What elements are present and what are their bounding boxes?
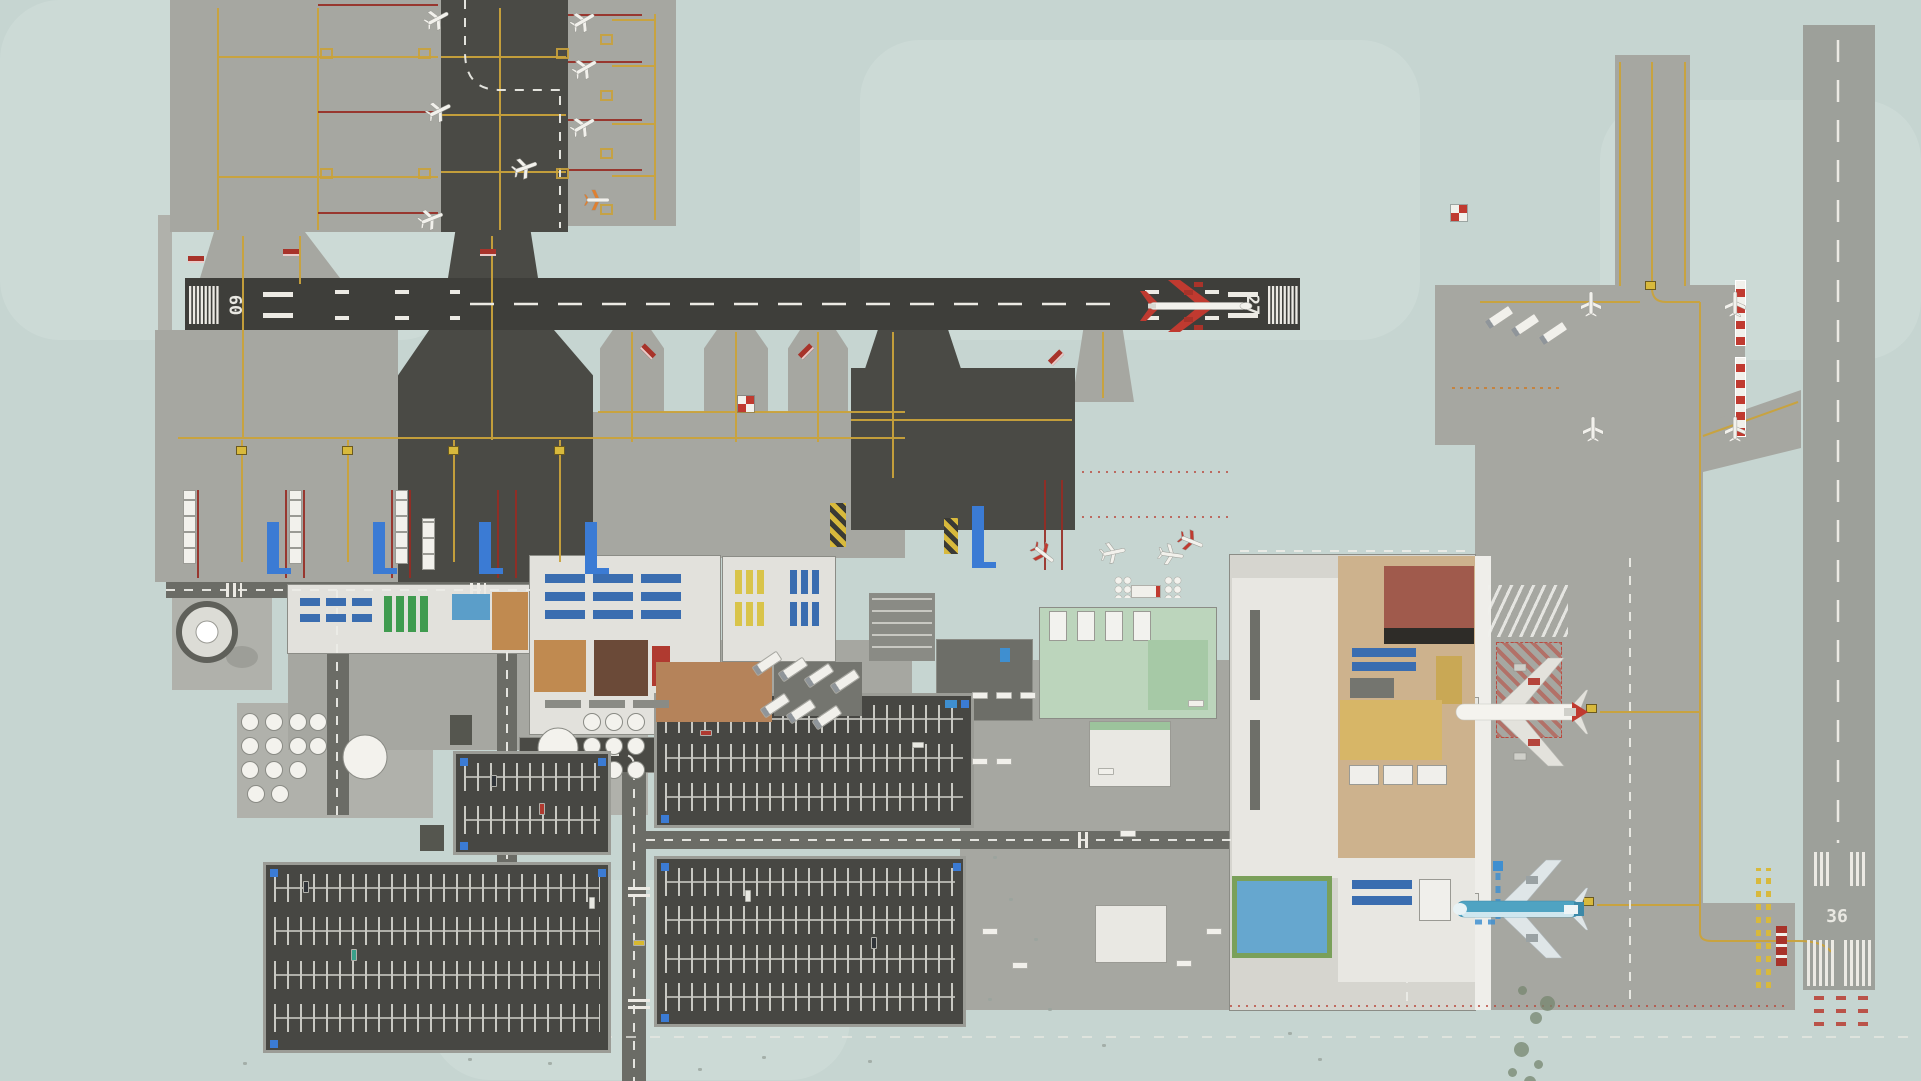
tree: [1524, 1076, 1536, 1081]
equipment-pad: [418, 48, 431, 59]
deicing-rig[interactable]: [373, 522, 385, 572]
seating-bench: [746, 570, 753, 594]
check-in-desk[interactable]: [593, 574, 633, 583]
car[interactable]: [539, 803, 545, 815]
fuel-tank[interactable]: [628, 738, 645, 755]
service-truck[interactable]: [1120, 830, 1136, 837]
parking-stall-row: [665, 744, 963, 772]
airplane-at-gate[interactable]: [1438, 652, 1588, 772]
office-desk-row: [352, 598, 372, 606]
baggage-belt: [420, 596, 428, 632]
runway-marking: [1850, 940, 1853, 986]
runway-marking: [1856, 852, 1859, 886]
equipment-pad: [320, 168, 333, 179]
fuel-tank[interactable]: [290, 738, 307, 755]
runway-marking: [1814, 852, 1817, 886]
runway-marking: [197, 286, 199, 324]
parking-lot[interactable]: [654, 856, 966, 1027]
debris: [1009, 898, 1013, 901]
kiosk[interactable]: [1384, 766, 1412, 784]
fuel-tank[interactable]: [248, 786, 265, 803]
check-in-desk[interactable]: [641, 574, 681, 583]
debris: [1102, 1044, 1106, 1047]
debris: [243, 1062, 247, 1065]
equipment-staging-pad: [830, 503, 846, 547]
runway-marking: [1288, 286, 1290, 324]
seating-bench: [801, 570, 808, 594]
runway-marking: [1862, 852, 1865, 886]
runway-marking: [1814, 1022, 1824, 1026]
stand-guidance-board: [183, 490, 196, 564]
fuel-tank[interactable]: [606, 714, 623, 731]
small-plane-icon[interactable]: [1723, 412, 1747, 442]
fuel-tank[interactable]: [310, 714, 327, 731]
handicap-spot-marker: [661, 1014, 669, 1022]
restaurant[interactable]: [594, 640, 648, 696]
service-truck[interactable]: [1176, 960, 1192, 967]
runway-marking: [450, 316, 460, 320]
runway-hold-sign: [283, 249, 299, 256]
handicap-spot-marker: [961, 700, 969, 708]
runway-marking: [1295, 286, 1297, 324]
fuel-tank[interactable]: [242, 714, 259, 731]
tree: [1534, 1060, 1543, 1069]
runway-marking: [395, 290, 409, 294]
seating-bench: [735, 602, 742, 626]
check-in-desk[interactable]: [545, 592, 585, 601]
segmented-circle-marker: [1451, 205, 1467, 221]
security-wing: [1232, 578, 1338, 878]
runway-marking: [1862, 940, 1865, 986]
runway-marking: [1836, 996, 1846, 1000]
runway-marking: [1268, 286, 1270, 324]
service-truck[interactable]: [972, 758, 988, 765]
runway-marking: [201, 286, 203, 324]
car[interactable]: [491, 775, 497, 787]
service-building-roof: [1090, 722, 1170, 730]
debris: [993, 856, 997, 859]
car[interactable]: [912, 742, 924, 748]
gate-roof: [872, 596, 932, 658]
service-truck[interactable]: [1188, 700, 1204, 707]
runway-marking: [1813, 940, 1816, 986]
deicing-rig-arm: [267, 568, 291, 574]
crosswalk: [628, 996, 650, 1009]
fuel-tank[interactable]: [290, 714, 307, 731]
parking-stall-row: [665, 983, 955, 1011]
runway-marking: [1820, 852, 1823, 886]
runway-marking: [1850, 852, 1853, 886]
cargo-door: [1000, 648, 1010, 662]
parking-stall-row: [464, 806, 600, 834]
debris: [988, 998, 992, 1001]
runway-marking: [193, 286, 195, 324]
deicing-rig-arm: [972, 562, 996, 568]
handicap-spot-marker: [460, 842, 468, 850]
stand-number-sign: [448, 446, 459, 455]
runway-marking: [1276, 286, 1278, 324]
deicing-rig[interactable]: [267, 522, 279, 572]
shop[interactable]: [492, 592, 528, 650]
fuel-tank[interactable]: [290, 762, 307, 779]
small-plane-icon[interactable]: [1579, 287, 1603, 317]
runway-marking: [1844, 940, 1847, 986]
runway-marking: [1836, 1022, 1846, 1026]
handicap-spot-marker: [661, 815, 669, 823]
equipment-pad: [600, 148, 613, 159]
seating-bench: [757, 602, 764, 626]
service-truck[interactable]: [996, 692, 1012, 699]
parking-stall-row: [665, 868, 955, 896]
office-desk-row: [326, 614, 346, 622]
runway-marking: [1858, 996, 1868, 1000]
car[interactable]: [871, 937, 877, 949]
parking-stall-row: [274, 1004, 600, 1032]
runway-marking: [1836, 1009, 1846, 1013]
deicing-rig-arm: [373, 568, 397, 574]
runway-marking: [335, 316, 349, 320]
car[interactable]: [303, 881, 309, 893]
seating-bench: [1352, 896, 1412, 905]
runway-09-number: 09: [227, 295, 247, 315]
runway-marking: [450, 290, 460, 294]
handicap-spot-marker: [953, 863, 961, 871]
car[interactable]: [351, 949, 357, 961]
passenger-walkway: [1488, 585, 1568, 637]
office-desk-row: [300, 614, 320, 622]
runway-hold-sign: [480, 249, 496, 256]
check-in-desk[interactable]: [593, 610, 633, 619]
seating-bench: [812, 602, 819, 626]
runway-marking: [1856, 940, 1859, 986]
seating-bench: [1352, 880, 1412, 889]
runway-marking: [1826, 852, 1829, 886]
deicing-rig[interactable]: [479, 522, 491, 572]
parking-stall-row: [274, 874, 600, 902]
check-in-desk[interactable]: [545, 574, 585, 583]
corridor: [1250, 610, 1260, 700]
debris: [868, 1060, 872, 1063]
service-building[interactable]: [1090, 722, 1170, 786]
runway-marking: [1825, 940, 1828, 986]
runway-marking: [1280, 286, 1282, 324]
runway-marking: [395, 316, 409, 320]
fuel-tank[interactable]: [242, 738, 259, 755]
corridor: [1250, 720, 1260, 810]
seating-bench: [1352, 662, 1416, 671]
handicap-spot-marker: [270, 1040, 278, 1048]
runway-marking: [1858, 1022, 1868, 1026]
shop[interactable]: [534, 640, 586, 692]
runway-marking: [1814, 996, 1824, 1000]
parking-lot[interactable]: [263, 862, 611, 1053]
equipment-pad: [556, 168, 569, 179]
runway-marking: [216, 286, 218, 324]
service-building[interactable]: [1096, 906, 1166, 962]
fuel-cart[interactable]: [1132, 586, 1160, 597]
service-truck[interactable]: [1206, 928, 1222, 935]
taxi-lines: [178, 8, 1831, 952]
seating-bench: [801, 602, 808, 626]
office-desk-row: [352, 614, 372, 622]
service-truck[interactable]: [972, 692, 988, 699]
bench-row: [545, 700, 581, 708]
staff-room: [452, 594, 490, 620]
debris: [762, 1056, 766, 1059]
fuel-pump-island[interactable]: [1078, 612, 1094, 640]
debris: [1034, 938, 1038, 941]
seating-bench: [812, 570, 819, 594]
fuel-tank[interactable]: [266, 762, 283, 779]
seating-bench: [790, 570, 797, 594]
cargo-door: [945, 700, 957, 708]
equipment-staging-pad: [944, 518, 958, 554]
debris: [548, 1062, 552, 1065]
equipment-pad: [418, 168, 431, 179]
seating-bench: [735, 570, 742, 594]
seating-bench: [746, 602, 753, 626]
kiosk[interactable]: [1350, 766, 1378, 784]
runway-marking: [335, 290, 349, 294]
parking-stall-row: [464, 763, 600, 791]
runway-marking: [1291, 286, 1293, 324]
car[interactable]: [633, 940, 645, 946]
service-truck[interactable]: [1012, 962, 1028, 969]
water-feature: [1232, 876, 1332, 958]
fuel-pump-island[interactable]: [1106, 612, 1122, 640]
runway-marking: [1807, 940, 1810, 986]
seating-bench: [757, 570, 764, 594]
check-in-desk[interactable]: [641, 610, 681, 619]
small-plane-icon[interactable]: [584, 188, 614, 212]
runway-marking: [212, 286, 214, 324]
fuel-drums[interactable]: [1164, 576, 1182, 598]
fuel-tank[interactable]: [628, 762, 645, 779]
stand-number-sign: [236, 446, 247, 455]
parking-stall-row: [274, 917, 600, 945]
radar-dish-center: [196, 621, 218, 643]
tree: [1514, 1042, 1529, 1057]
runway-hold-sign: [188, 256, 204, 263]
fuel-tank[interactable]: [310, 738, 327, 755]
runway-marking: [1284, 286, 1286, 324]
crosswalk: [1078, 832, 1092, 848]
tree: [1530, 1012, 1542, 1024]
stage-block: [1350, 678, 1394, 698]
deicing-rig-arm: [479, 568, 503, 574]
airport-map[interactable]: 09 27 36: [0, 0, 1921, 1081]
ils-hold-marking: [1756, 868, 1761, 988]
check-in-desk[interactable]: [641, 592, 681, 601]
fuel-pump-island[interactable]: [1050, 612, 1066, 640]
equipment-pad: [600, 34, 613, 45]
handicap-spot-marker: [460, 758, 468, 766]
handicap-spot-marker: [661, 863, 669, 871]
airplane-at-gate[interactable]: [1438, 852, 1588, 962]
handicap-spot-marker: [598, 758, 606, 766]
parking-stall-row: [665, 906, 955, 934]
small-plane-icon[interactable]: [1581, 412, 1605, 442]
runway-distance-board: [1776, 926, 1787, 966]
bar-counter: [1384, 628, 1474, 644]
baggage-belt: [384, 596, 392, 632]
seating-bench: [1352, 648, 1416, 657]
runway-marking: [263, 313, 293, 318]
small-plane-icon[interactable]: [1723, 287, 1747, 317]
stand-guidance-board: [289, 490, 302, 564]
service-truck[interactable]: [1098, 768, 1114, 775]
tree: [1508, 1068, 1517, 1077]
runway-marking: [209, 286, 211, 324]
handicap-spot-marker: [598, 869, 606, 877]
debris: [468, 1058, 472, 1061]
parking-lot[interactable]: [453, 751, 611, 855]
fuel-tank[interactable]: [266, 714, 283, 731]
office-desk-row: [300, 598, 320, 606]
runway-marking: [1819, 940, 1822, 986]
check-in-desk[interactable]: [545, 610, 585, 619]
stand-lines: [198, 5, 1062, 578]
car[interactable]: [745, 890, 751, 902]
stand-guidance-board: [395, 490, 408, 564]
equipment-pad: [600, 90, 613, 101]
parking-stall-row: [665, 783, 963, 811]
office-desk-row: [326, 598, 346, 606]
equipment-pad: [320, 48, 333, 59]
fuel-tank[interactable]: [242, 762, 259, 779]
runway-marking: [1868, 940, 1871, 986]
generator-shed[interactable]: [420, 825, 444, 851]
seating-bench: [790, 602, 797, 626]
runway-marking: [1858, 1009, 1868, 1013]
car[interactable]: [589, 897, 595, 909]
runway-marking: [263, 292, 293, 297]
fuel-tank[interactable]: [628, 714, 645, 731]
fuel-tank[interactable]: [343, 735, 387, 779]
debris: [1048, 1008, 1052, 1011]
debris: [1318, 1058, 1322, 1061]
segmented-circle-marker: [738, 396, 754, 412]
queue-area: [1340, 700, 1442, 760]
stand-number-sign: [1645, 281, 1656, 290]
runway-36-number: 36: [1826, 906, 1848, 927]
runway-marking: [205, 286, 207, 324]
service-truck[interactable]: [1020, 692, 1036, 699]
handicap-spot-marker: [270, 869, 278, 877]
debris: [1288, 1032, 1292, 1035]
equipment-pad: [556, 48, 569, 59]
check-in-desk[interactable]: [593, 592, 633, 601]
runway-marking: [189, 286, 191, 324]
ils-hold-marking: [1766, 868, 1771, 988]
baggage-belt: [408, 596, 416, 632]
deicing-rig[interactable]: [972, 506, 984, 568]
stand-number-sign: [554, 446, 565, 455]
generator-shed[interactable]: [450, 715, 472, 745]
fuel-pump-island[interactable]: [1134, 612, 1150, 640]
runway-marking: [1272, 286, 1274, 324]
parking-stall-row: [665, 945, 955, 973]
fuel-tank[interactable]: [266, 738, 283, 755]
bench-row: [589, 700, 625, 708]
fuel-tank[interactable]: [272, 786, 289, 803]
bench-row: [633, 700, 669, 708]
baggage-belt: [396, 596, 404, 632]
tree: [1518, 986, 1527, 995]
debris: [698, 1068, 702, 1071]
car[interactable]: [700, 730, 712, 736]
restaurant[interactable]: [1384, 566, 1474, 628]
deicing-rig[interactable]: [585, 522, 597, 572]
crosswalk: [226, 583, 242, 597]
stand-number-sign: [342, 446, 353, 455]
stand-guidance-board: [422, 518, 435, 570]
runway-marking: [1831, 940, 1834, 986]
tree: [1540, 996, 1555, 1011]
airplane-on-runway[interactable]: [1140, 276, 1260, 336]
runway-marking: [1814, 1009, 1824, 1013]
fuel-tank[interactable]: [584, 714, 601, 731]
service-truck[interactable]: [996, 758, 1012, 765]
parking-stall-row: [274, 961, 600, 989]
fuel-drums[interactable]: [1114, 576, 1132, 598]
crosswalk: [628, 884, 650, 897]
service-truck[interactable]: [982, 928, 998, 935]
